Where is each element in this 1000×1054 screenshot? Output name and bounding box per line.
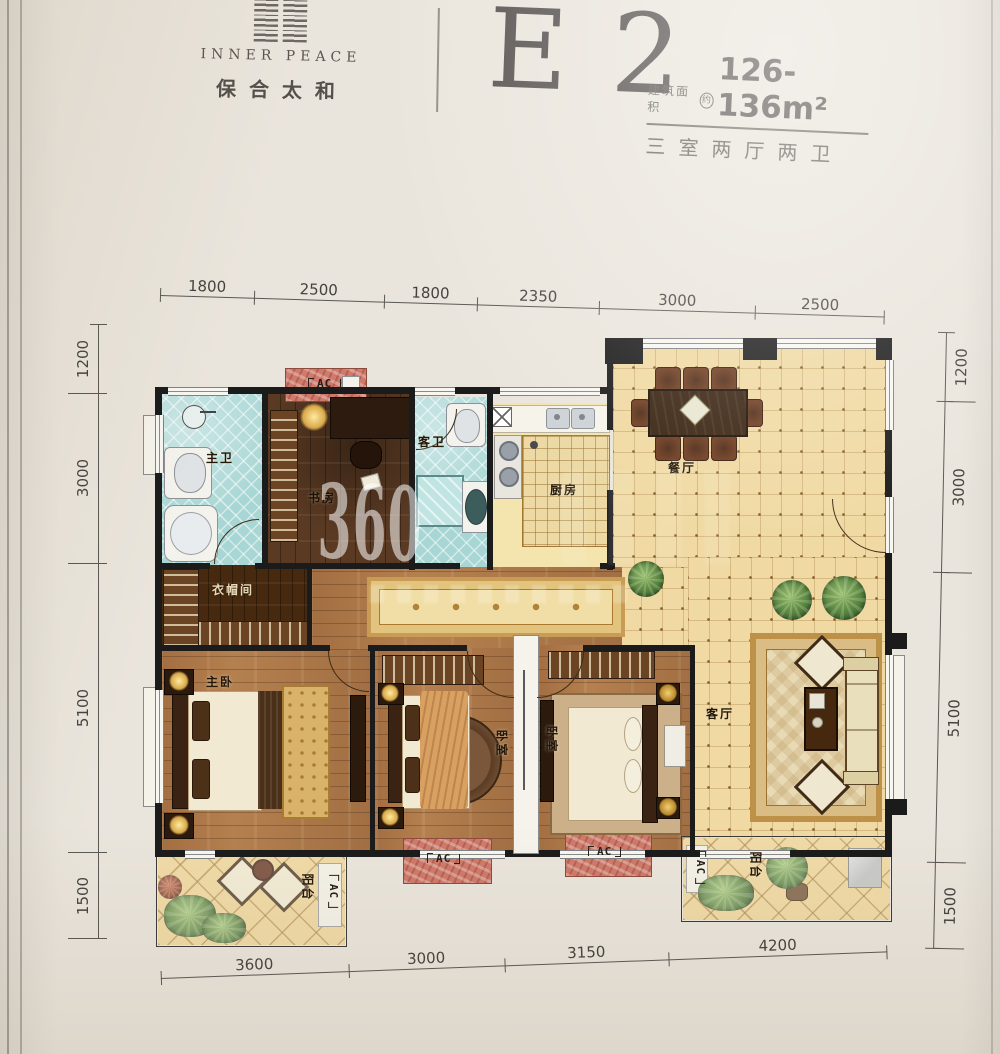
shower-area xyxy=(416,475,464,527)
label-living: 客厅 xyxy=(706,705,734,722)
wall-pier xyxy=(743,338,777,360)
wall xyxy=(307,567,312,645)
balcony-door-opening xyxy=(185,850,215,859)
dim-top-5: 3000 xyxy=(658,291,697,310)
entry-door-opening xyxy=(885,497,894,553)
ac-pad-b-label: AC xyxy=(588,845,621,858)
pillow xyxy=(405,705,420,741)
floorplan: AC AC AC xyxy=(150,335,910,960)
dim-left-3: 5100 xyxy=(74,689,92,727)
dim-left-4: 1500 xyxy=(74,877,92,915)
brand-logo-icon xyxy=(250,0,311,47)
shaft-rod xyxy=(523,670,525,790)
lamp xyxy=(169,815,189,835)
balcony-rail xyxy=(681,836,892,922)
dim-left-2: 3000 xyxy=(74,459,92,497)
watermark-360: 360 xyxy=(317,462,423,586)
window xyxy=(168,387,228,396)
dim-top-3: 1800 xyxy=(411,283,450,302)
ac-balcony-left-label: AC xyxy=(327,875,340,908)
bay-cap xyxy=(885,799,907,815)
balcony-door-opening xyxy=(700,850,790,859)
sofa xyxy=(845,667,879,777)
ac-pad-a-label: AC xyxy=(427,852,460,865)
sofa-armrest xyxy=(843,771,879,785)
page-edge-line xyxy=(991,0,993,1054)
area-label: 建筑面积 xyxy=(647,81,696,122)
lamp xyxy=(381,684,399,702)
label-balcony-right: 阳台 xyxy=(748,851,765,879)
table-tray xyxy=(809,693,825,709)
sofa-armrest xyxy=(843,657,879,671)
lamp xyxy=(169,671,189,691)
window xyxy=(885,360,894,430)
watermark-ghost xyxy=(560,470,750,565)
pillow xyxy=(624,759,642,793)
window xyxy=(643,338,743,349)
page-fold-line xyxy=(7,0,9,1054)
sink-basin xyxy=(465,489,487,525)
window xyxy=(777,338,876,349)
desk xyxy=(330,397,410,439)
bay-window-living xyxy=(885,655,894,799)
page-fold-line xyxy=(20,0,22,1054)
closet-shelf-left xyxy=(163,569,199,647)
label-bedroom3: 卧室 xyxy=(544,725,561,753)
ac-balcony-right-label: AC xyxy=(694,851,707,884)
dining-chair xyxy=(683,435,709,461)
area-value: 126-136m² xyxy=(716,51,879,130)
drain xyxy=(579,414,585,420)
wall xyxy=(583,645,690,651)
wall xyxy=(155,563,210,569)
wall xyxy=(370,645,375,852)
watermark-row xyxy=(370,585,635,603)
window xyxy=(155,415,164,473)
toilet-bowl xyxy=(174,453,206,493)
wall xyxy=(607,347,613,430)
tv-console xyxy=(350,695,366,802)
shaft-between-bedrooms xyxy=(513,635,539,854)
drain xyxy=(554,414,560,420)
dimension-chain-right: 1200 3000 5100 1500 xyxy=(933,333,977,950)
window xyxy=(415,387,455,396)
label-guest-bath: 客卫 xyxy=(418,433,446,450)
bed-blanket xyxy=(420,691,468,809)
bedside-rug xyxy=(282,685,330,819)
dim-right-3: 5100 xyxy=(945,698,964,737)
bed-blanket xyxy=(258,691,282,809)
pillow xyxy=(192,701,210,741)
faucet-handle xyxy=(200,411,216,413)
dim-right-1: 1200 xyxy=(952,348,971,387)
dim-top-2: 2500 xyxy=(299,280,338,299)
floor-drain xyxy=(530,441,538,449)
plant xyxy=(772,580,812,620)
dining-chair xyxy=(711,435,737,461)
balcony-rail xyxy=(156,850,347,947)
dim-right-2: 3000 xyxy=(949,468,968,507)
bay-cap xyxy=(885,633,907,649)
label-bedroom2: 卧室 xyxy=(494,729,511,757)
label-master-bath: 主卫 xyxy=(206,449,234,466)
gold-lamp xyxy=(659,684,677,702)
label-balcony-left: 阳台 xyxy=(300,873,317,901)
wall xyxy=(690,645,695,852)
plant xyxy=(822,576,866,620)
dim-right-4: 1500 xyxy=(941,886,960,925)
vanity-sink xyxy=(182,405,206,429)
table-bowl xyxy=(812,717,823,728)
gold-lamp xyxy=(659,798,677,816)
bathtub-basin xyxy=(170,512,212,555)
flue-symbol xyxy=(492,407,512,427)
dim-top-6: 2500 xyxy=(801,295,840,314)
toilet-bowl xyxy=(454,409,480,443)
dim-top-4: 2350 xyxy=(519,287,558,306)
dimension-chain-left: 1200 3000 5100 1500 xyxy=(68,325,99,939)
ac-top-label: AC xyxy=(308,377,341,390)
floorplan-photo: { "header": { "brand_en": "INNER PEACE",… xyxy=(0,0,1000,1054)
approx-circle-mark: 约 xyxy=(699,92,714,109)
area-row: 建筑面积 约 126-136m² xyxy=(647,48,880,130)
wall xyxy=(155,645,330,651)
dim-left-1: 1200 xyxy=(74,340,92,378)
window xyxy=(155,690,164,803)
pillow xyxy=(624,717,642,751)
burner xyxy=(499,441,519,461)
logo-maze-right xyxy=(283,0,308,44)
pillow xyxy=(405,757,420,793)
lamp xyxy=(381,808,399,826)
layout-description: 三室两厅两卫 xyxy=(645,130,876,169)
header-divider xyxy=(436,8,440,112)
pillow xyxy=(192,759,210,799)
wall xyxy=(368,645,467,651)
brand-name-cn: 保合太和 xyxy=(192,72,373,105)
burner xyxy=(499,467,519,487)
study-lamp xyxy=(300,403,328,431)
logo-maze-left xyxy=(254,0,279,44)
dim-top-1: 1800 xyxy=(188,277,227,296)
wall xyxy=(487,393,493,570)
dining-chair xyxy=(655,435,681,461)
label-master-bedroom: 主卧 xyxy=(206,673,234,690)
window xyxy=(500,387,600,396)
bookshelf xyxy=(270,410,298,542)
brand-name-en: INNER PEACE xyxy=(186,46,376,66)
label-closet: 衣帽间 xyxy=(212,581,254,598)
wall xyxy=(262,387,268,567)
unit-info-block: 建筑面积 约 126-136m² 三室两厅两卫 xyxy=(645,48,880,169)
dimension-chain-top: 1800 2500 1800 2350 3000 2500 xyxy=(160,272,885,317)
dresser xyxy=(664,725,686,767)
